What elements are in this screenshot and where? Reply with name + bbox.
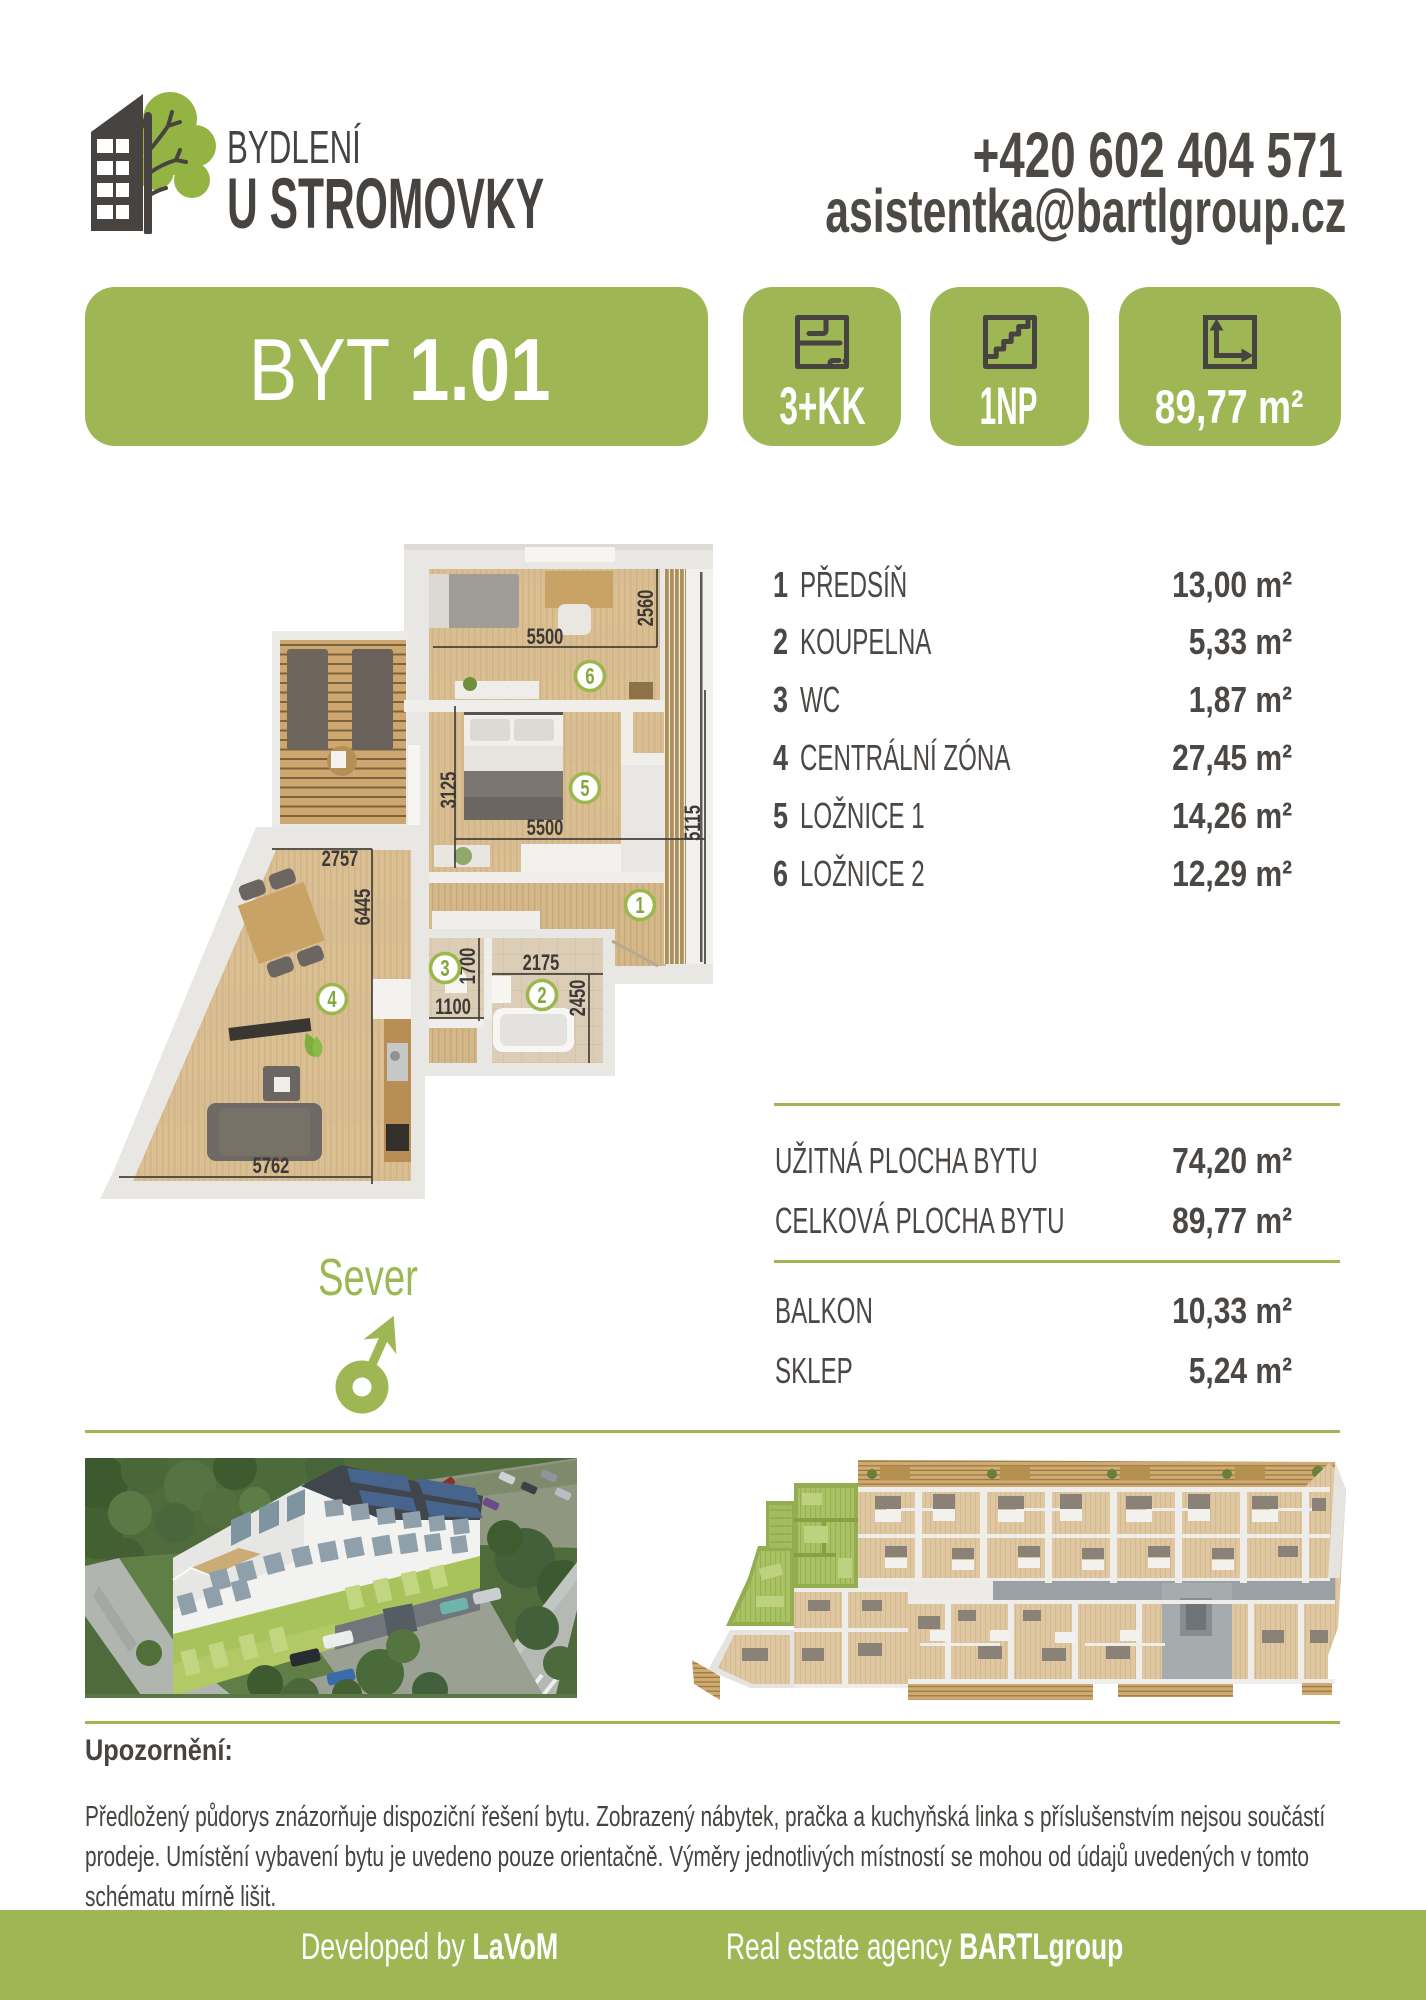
svg-text:4: 4 [327, 987, 337, 1012]
svg-text:5762: 5762 [253, 1154, 290, 1179]
svg-text:2175: 2175 [523, 951, 560, 976]
svg-text:3: 3 [440, 956, 449, 981]
svg-text:1100: 1100 [435, 995, 471, 1020]
svg-text:1: 1 [635, 893, 644, 918]
svg-text:2: 2 [537, 983, 546, 1008]
svg-text:2757: 2757 [322, 847, 359, 872]
svg-text:6445: 6445 [351, 888, 376, 925]
svg-text:2450: 2450 [566, 979, 591, 1016]
